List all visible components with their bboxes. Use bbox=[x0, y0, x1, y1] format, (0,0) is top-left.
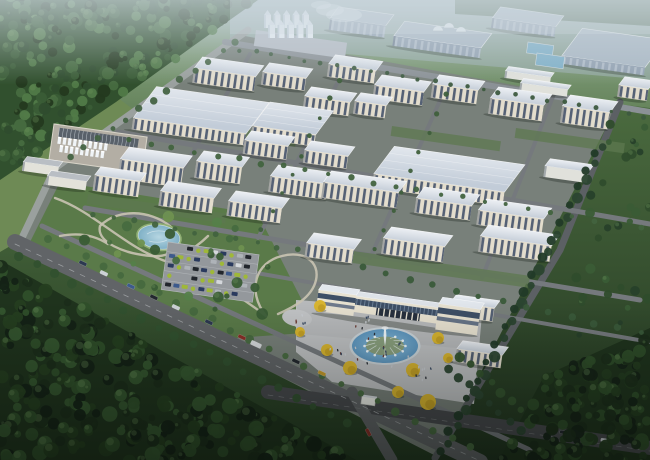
scene-svg bbox=[0, 0, 650, 460]
aerial-render bbox=[0, 0, 650, 460]
